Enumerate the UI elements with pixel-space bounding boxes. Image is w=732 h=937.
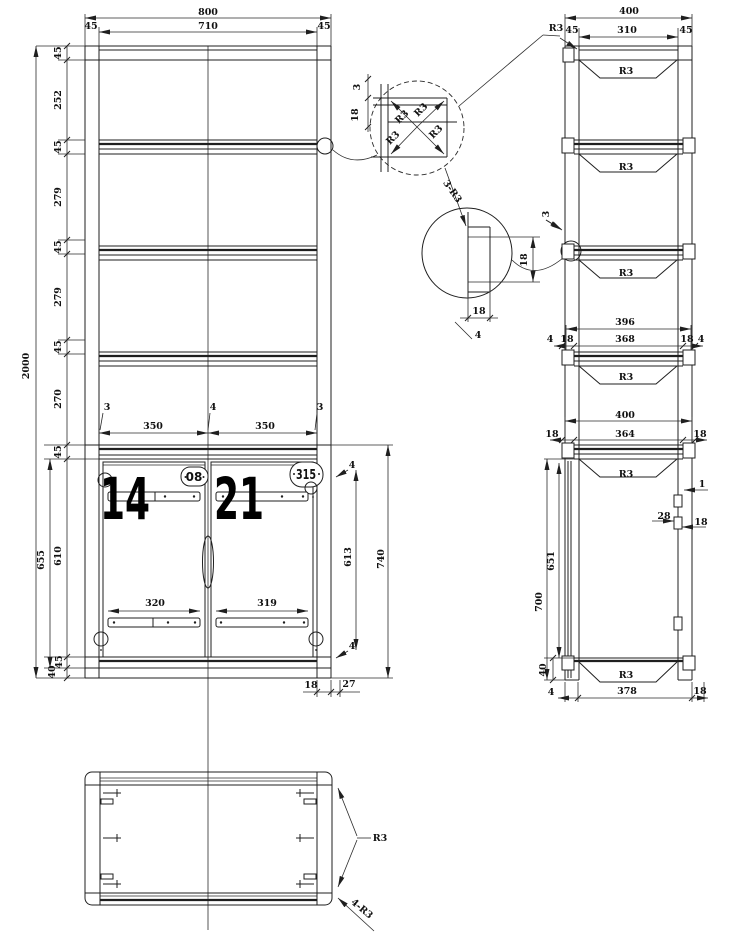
front-dim-320: 320 — [145, 598, 165, 609]
side-dim-4: 4 — [547, 334, 554, 345]
detail-circle-channel — [422, 208, 512, 298]
channel-profile-detail — [422, 208, 581, 339]
detail1-r3: R3 — [384, 129, 402, 147]
side-dim-45-left: 45 — [565, 25, 578, 36]
side-dim-651: 651 — [546, 551, 557, 571]
side-dim-364: 364 — [615, 429, 635, 440]
side-dim-310: 310 — [617, 25, 637, 36]
side-dim-18-bottom: 18 — [693, 686, 707, 697]
hinge-bar-lower-left — [108, 618, 200, 627]
front-dim-350-left: 350 — [143, 421, 163, 432]
side-dim-368: 368 — [615, 334, 635, 345]
front-dim-4-top: 4 — [349, 460, 356, 471]
front-chain-45: 45 — [53, 445, 64, 458]
front-view-labels: 8007104545452524527945279452702000456556… — [21, 7, 387, 691]
foot-adjuster-left — [94, 632, 108, 646]
side-dim-400-mid: 400 — [615, 410, 635, 421]
detail1-dim-3: 3 — [352, 84, 363, 91]
side-dim-18: 18 — [545, 429, 559, 440]
front-dim-710: 710 — [198, 21, 218, 32]
detail1-r3: R3 — [393, 108, 411, 126]
dowel-pins-left — [101, 789, 121, 888]
side-shelf-r3: R3 — [619, 162, 634, 173]
plan-outline — [85, 772, 332, 905]
front-dim-3-left: 3 — [104, 402, 111, 413]
side-shelf-r3: R3 — [619, 66, 634, 77]
front-dim-350-right: 350 — [255, 421, 275, 432]
front-dim-3-right: 3 — [317, 402, 324, 413]
detail1-dim-18: 18 — [350, 108, 361, 122]
door-number-14: 14 — [100, 465, 150, 533]
front-chain-270: 270 — [53, 389, 64, 409]
detail-circle-corner — [370, 81, 464, 175]
side-dim-700: 700 — [534, 592, 545, 612]
side-dim-4: 4 — [698, 334, 705, 345]
side-dim-18-hinge: 18 — [694, 517, 708, 528]
door-plate-315: 315 — [296, 468, 316, 483]
side-dim-378: 378 — [617, 686, 637, 697]
front-dim-610: 610 — [53, 546, 64, 566]
detail2-dim-3: 3 — [541, 211, 552, 218]
front-chain-45: 45 — [53, 240, 64, 253]
front-chain-279: 279 — [53, 187, 64, 207]
front-dim-319: 319 — [257, 598, 277, 609]
door-number-21: 21 — [214, 465, 264, 533]
side-shelf-r3: R3 — [619, 268, 634, 279]
front-dim-655: 655 — [36, 550, 47, 570]
channel-detail-labels: 183184 — [472, 211, 552, 341]
plan-r3-callout: R3 — [373, 833, 388, 844]
front-dim-45-right: 45 — [317, 21, 330, 32]
front-dim-800: 800 — [198, 7, 218, 18]
hinge-plate — [674, 617, 682, 630]
front-dim-27: 27 — [342, 679, 355, 690]
side-dim-28: 28 — [657, 511, 671, 522]
dowel-pins-right — [296, 789, 316, 888]
side-dim-18: 18 — [693, 429, 707, 440]
front-dim-4-mid: 4 — [210, 402, 217, 413]
front-chain-252: 252 — [53, 90, 64, 110]
technical-drawing-canvas: 8007104545452524527945279452702000456556… — [0, 0, 732, 937]
side-view — [562, 46, 695, 682]
detail2-callout-3-r3: 3-R3 — [440, 178, 463, 205]
side-r3-top-callout: R3 — [549, 23, 564, 34]
front-chain-40: 40 — [47, 665, 58, 679]
side-dim-396: 396 — [615, 317, 635, 328]
side-shelf-r3: R3 — [619, 469, 634, 480]
front-dim-613: 613 — [343, 547, 354, 567]
side-dim-1: 1 — [699, 479, 706, 490]
hinge-bar-lower-right — [216, 618, 308, 627]
side-dim-18: 18 — [680, 334, 694, 345]
detail2-dim-4: 4 — [475, 330, 482, 341]
detail1-r3: R3 — [427, 123, 445, 141]
side-dim-40: 40 — [538, 663, 549, 677]
front-overall-2000: 2000 — [21, 352, 32, 379]
front-dim-740: 740 — [376, 549, 387, 569]
cabinet-technical-drawing: 8007104545452524527945279452702000456556… — [0, 0, 732, 937]
front-dim-4-bottom: 4 — [349, 641, 356, 652]
side-shelf-r3-bottom: R3 — [619, 670, 634, 681]
foot-adjuster-right — [309, 632, 323, 646]
side-dim-400-top: 400 — [619, 6, 639, 17]
detail2-dim-18-bottom: 18 — [472, 306, 486, 317]
side-dim-45-right: 45 — [679, 25, 692, 36]
front-chain-45: 45 — [53, 140, 64, 153]
front-chain-45: 45 — [53, 340, 64, 353]
front-chain-279: 279 — [53, 287, 64, 307]
side-dim-18: 18 — [560, 334, 574, 345]
hinge-plate — [674, 495, 682, 507]
plan-4-r3-callout: 4-R3 — [348, 897, 374, 922]
front-dim-18: 18 — [304, 680, 318, 691]
front-dim-45-left: 45 — [84, 21, 97, 32]
side-shelf-r3: R3 — [619, 372, 634, 383]
front-chain-45: 45 — [53, 46, 64, 59]
corner-radius-detail — [317, 35, 577, 226]
detail2-dim-18-side: 18 — [519, 253, 530, 267]
plan-view — [85, 772, 374, 931]
door-plate-08: 08 — [186, 470, 203, 484]
hinge-plate — [674, 517, 682, 529]
side-dim-4-bottom: 4 — [548, 687, 555, 698]
